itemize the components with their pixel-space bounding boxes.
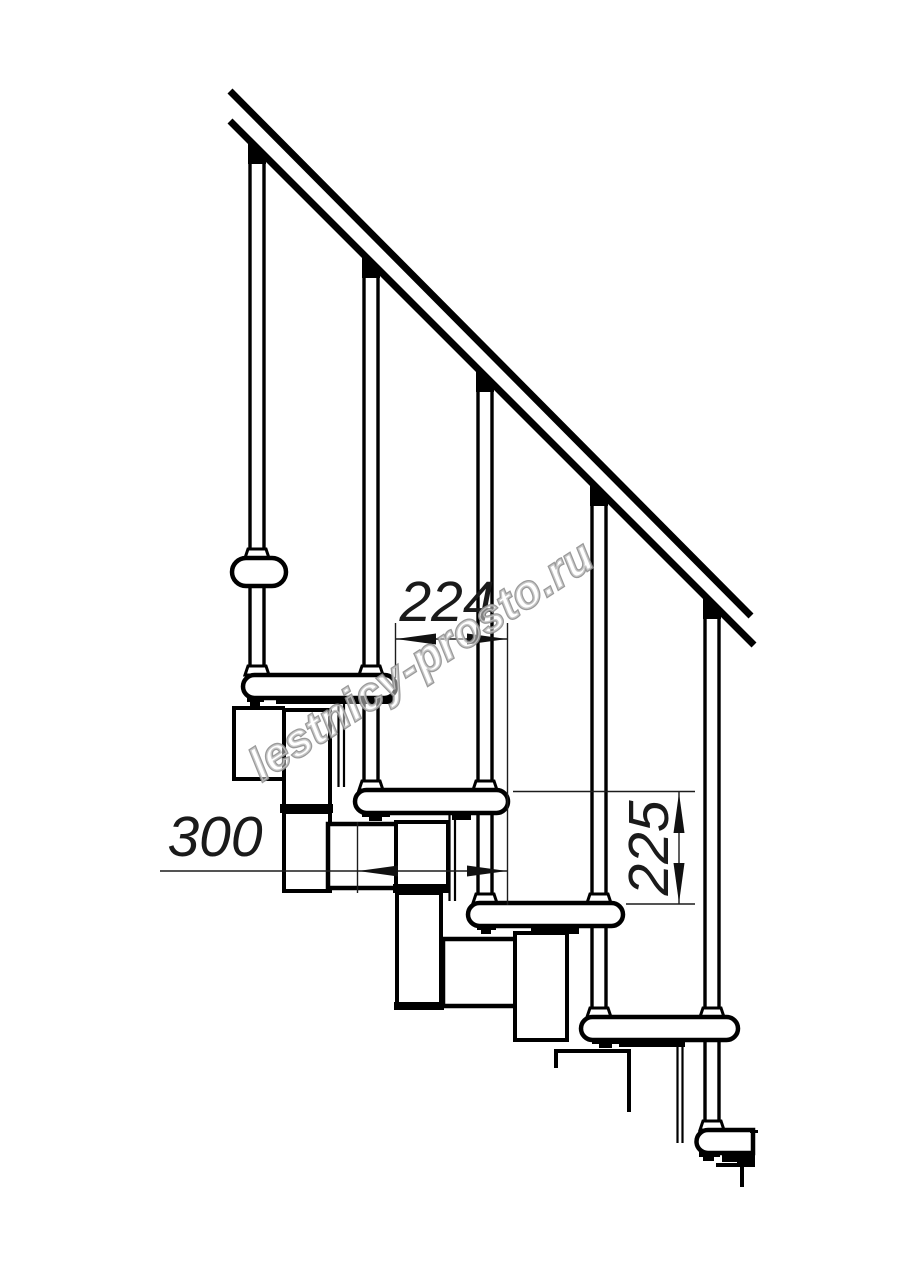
tread-mount-lug bbox=[737, 1158, 755, 1167]
tread-mount-lug bbox=[477, 925, 496, 934]
support-module-partial bbox=[556, 1041, 683, 1143]
tread bbox=[355, 790, 508, 821]
baluster bbox=[245, 142, 269, 675]
technical-drawing-page: 224 300 225 lestnicy-prosto.ru bbox=[0, 0, 914, 1280]
support-module-partial bbox=[716, 1165, 742, 1187]
support-modules bbox=[234, 697, 742, 1187]
tread-mount-lug bbox=[592, 1039, 619, 1048]
tread-mount-lug bbox=[699, 1152, 720, 1161]
support-module bbox=[515, 933, 567, 1040]
upper-bracket bbox=[232, 558, 286, 586]
tread-mount-lug bbox=[452, 812, 471, 820]
tread bbox=[468, 903, 623, 934]
dimension-225: 225 bbox=[513, 792, 695, 905]
tread-mount-lug bbox=[362, 812, 390, 821]
dimension-label: 225 bbox=[617, 800, 681, 896]
tread bbox=[581, 1017, 738, 1048]
tread-partial bbox=[697, 1130, 759, 1167]
tread-mount-lug bbox=[619, 1039, 685, 1047]
dimension-label: 300 bbox=[167, 805, 262, 869]
tread-mount-lug bbox=[531, 925, 579, 934]
tread-mount-lug bbox=[247, 697, 264, 706]
staircase-side-view-drawing: 224 300 225 lestnicy-prosto.ru bbox=[0, 0, 914, 1280]
watermark-text: lestnicy-prosto.ru bbox=[239, 529, 603, 790]
baluster bbox=[700, 597, 724, 1130]
